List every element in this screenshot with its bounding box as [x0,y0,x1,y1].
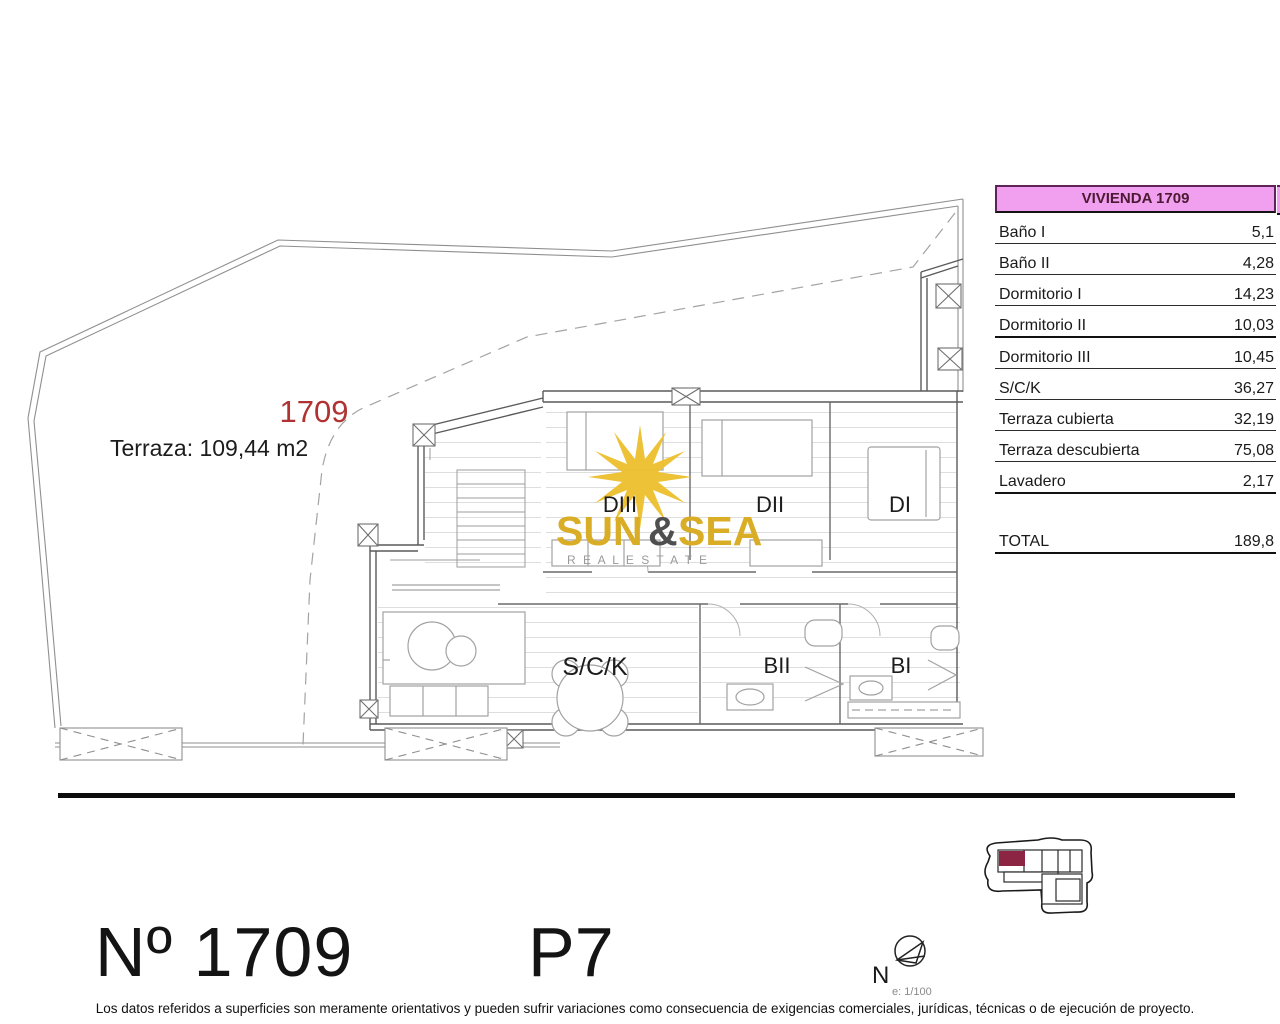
room-value: 36,27 [1234,380,1274,398]
key-plan [985,838,1092,913]
table-total-row: TOTAL 189,8 [995,522,1276,554]
table-row: Dormitorio I14,23 [995,275,1276,306]
room-label-sck: S/C/K [562,653,628,681]
table-row: Baño I5,1 [995,213,1276,244]
logo-subtitle: R E A L E S T A T E [567,553,709,567]
area-table-rows: Baño I5,1Baño II4,28Dormitorio I14,23Dor… [995,213,1276,494]
room-value: 10,03 [1234,317,1274,335]
logo-word-sea: SEA [678,508,762,554]
area-table-header: VIVIENDA 1709 [995,185,1276,213]
room-label: Terraza cubierta [999,411,1114,429]
room-label-diii: DIII [603,492,637,517]
divider-rule [58,793,1235,798]
floor-title: P7 [528,912,614,992]
north-label: N [872,962,889,989]
room-value: 5,1 [1252,224,1274,242]
room-label: Lavadero [999,473,1066,491]
total-label: TOTAL [999,533,1049,551]
north-compass [895,936,925,966]
room-value: 32,19 [1234,411,1274,429]
room-value: 75,08 [1234,442,1274,460]
unit-number-red: 1709 [280,394,349,429]
disclaimer-text: Los datos referidos a superficies son me… [60,1001,1230,1016]
room-label: Dormitorio I [999,286,1082,304]
area-table-spacer [995,494,1276,522]
table-row: S/C/K36,27 [995,369,1276,400]
room-value: 10,45 [1234,349,1274,367]
table-row: Baño II4,28 [995,244,1276,275]
room-value: 2,17 [1243,473,1274,491]
floorplan-page: SUN & SEA R E A L E S T A T E 1709 Terra… [0,0,1280,1024]
logo-ampersand: & [648,508,678,554]
room-label: Baño II [999,255,1050,273]
room-label-dii: DII [756,492,784,517]
table-row: Dormitorio II10,03 [995,306,1276,338]
room-label: Dormitorio II [999,317,1086,335]
total-value: 189,8 [1234,533,1274,551]
table-row: Terraza descubierta75,08 [995,431,1276,462]
room-label-di: DI [889,492,911,517]
room-value: 14,23 [1234,286,1274,304]
room-label: Terraza descubierta [999,442,1140,460]
terrace-area-note: Terraza: 109,44 m2 [110,435,308,461]
scale-label: e: 1/100 [892,986,932,998]
room-label-bii: BII [764,653,791,678]
unit-number-title: Nº 1709 [95,912,353,992]
table-row: Lavadero2,17 [995,462,1276,494]
table-row: Dormitorio III10,45 [995,338,1276,369]
room-label: S/C/K [999,380,1041,398]
room-label-bi: BI [891,653,912,678]
area-table: VIVIENDA 1709 Baño I5,1Baño II4,28Dormit… [995,185,1276,554]
room-label: Baño I [999,224,1045,242]
room-label: Dormitorio III [999,349,1091,367]
table-row: Terraza cubierta32,19 [995,400,1276,431]
room-value: 4,28 [1243,255,1274,273]
key-plan-highlighted-unit [999,851,1025,866]
